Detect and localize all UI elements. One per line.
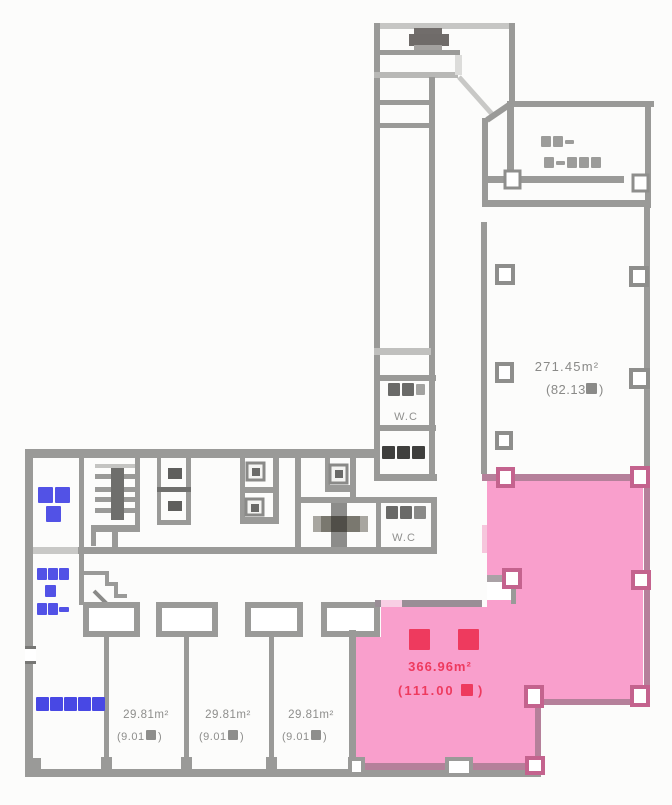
svg-text:(111.00: (111.00 — [398, 683, 455, 698]
svg-text:W.C: W.C — [392, 532, 416, 544]
svg-text:W.C: W.C — [394, 411, 418, 423]
svg-text:29.81m²: 29.81m² — [205, 709, 251, 721]
svg-text:271.45m²: 271.45m² — [535, 359, 600, 374]
svg-text:): ) — [478, 683, 482, 698]
svg-text:): ) — [599, 382, 603, 397]
svg-text:(9.01: (9.01 — [199, 731, 227, 743]
svg-text:29.81m²: 29.81m² — [123, 709, 169, 721]
svg-text:(82.13: (82.13 — [546, 382, 586, 397]
svg-text:366.96m²: 366.96m² — [408, 659, 472, 674]
svg-text:(9.01: (9.01 — [282, 731, 310, 743]
svg-text:): ) — [240, 731, 244, 743]
svg-text:): ) — [323, 731, 327, 743]
svg-text:29.81m²: 29.81m² — [288, 709, 334, 721]
svg-text:): ) — [158, 731, 162, 743]
svg-text:(9.01: (9.01 — [117, 731, 145, 743]
